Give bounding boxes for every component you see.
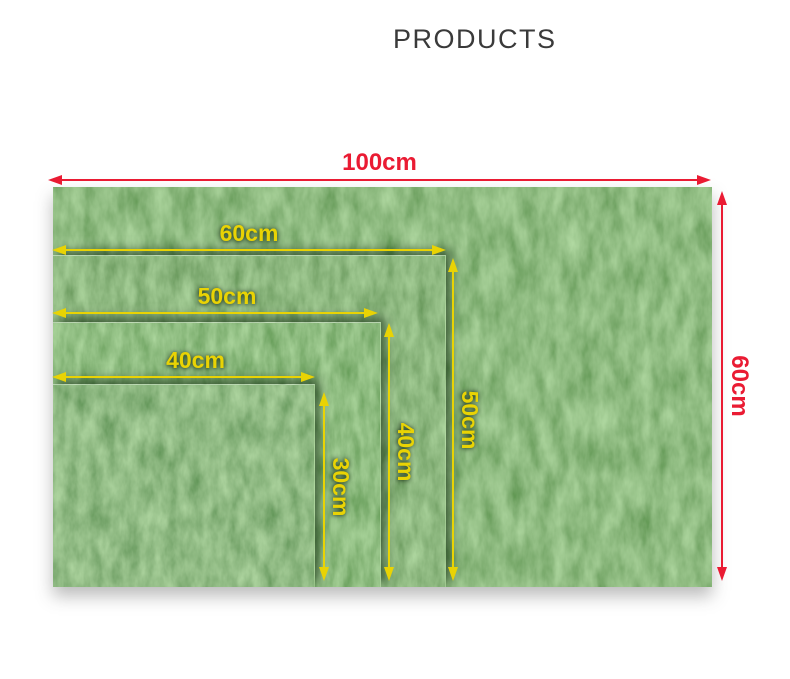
arrowhead-down-icon — [319, 567, 329, 581]
arrowhead-right-icon — [697, 175, 711, 185]
arrowhead-left-icon — [48, 175, 62, 185]
dimension-label: 60cm — [725, 355, 753, 416]
arrowhead-up-icon — [448, 258, 458, 272]
dimension-line — [388, 332, 390, 572]
arrowhead-down-icon — [384, 567, 394, 581]
arrowhead-left-icon — [52, 372, 66, 382]
arrowhead-right-icon — [364, 308, 378, 318]
arrowhead-left-icon — [52, 308, 66, 318]
dimension-line — [721, 200, 723, 572]
dimension-label: 50cm — [198, 283, 257, 310]
grass-texture — [53, 385, 314, 587]
dimension-label: 60cm — [220, 220, 279, 247]
dimension-line — [61, 249, 437, 251]
page-title: PRODUCTS — [393, 24, 557, 55]
grass-mat-100x60 — [53, 187, 712, 587]
dimension-label: 30cm — [327, 457, 354, 516]
arrowhead-down-icon — [448, 567, 458, 581]
arrowhead-left-icon — [52, 245, 66, 255]
dimension-line — [323, 401, 325, 572]
dimension-label: 40cm — [166, 347, 225, 374]
dimension-line — [452, 267, 454, 572]
arrowhead-down-icon — [717, 567, 727, 581]
arrowhead-up-icon — [384, 323, 394, 337]
dimension-line — [57, 179, 702, 181]
arrowhead-right-icon — [301, 372, 315, 382]
arrowhead-up-icon — [717, 191, 727, 205]
grass-mat-40x30 — [53, 384, 315, 587]
dimension-label: 50cm — [456, 390, 483, 449]
dimension-label: 100cm — [342, 149, 417, 177]
product-size-infographic: PRODUCTS — [0, 0, 790, 679]
dimension-line — [61, 376, 306, 378]
dimension-line — [61, 312, 369, 314]
dimension-label: 40cm — [392, 423, 419, 482]
arrowhead-right-icon — [432, 245, 446, 255]
arrowhead-up-icon — [319, 392, 329, 406]
